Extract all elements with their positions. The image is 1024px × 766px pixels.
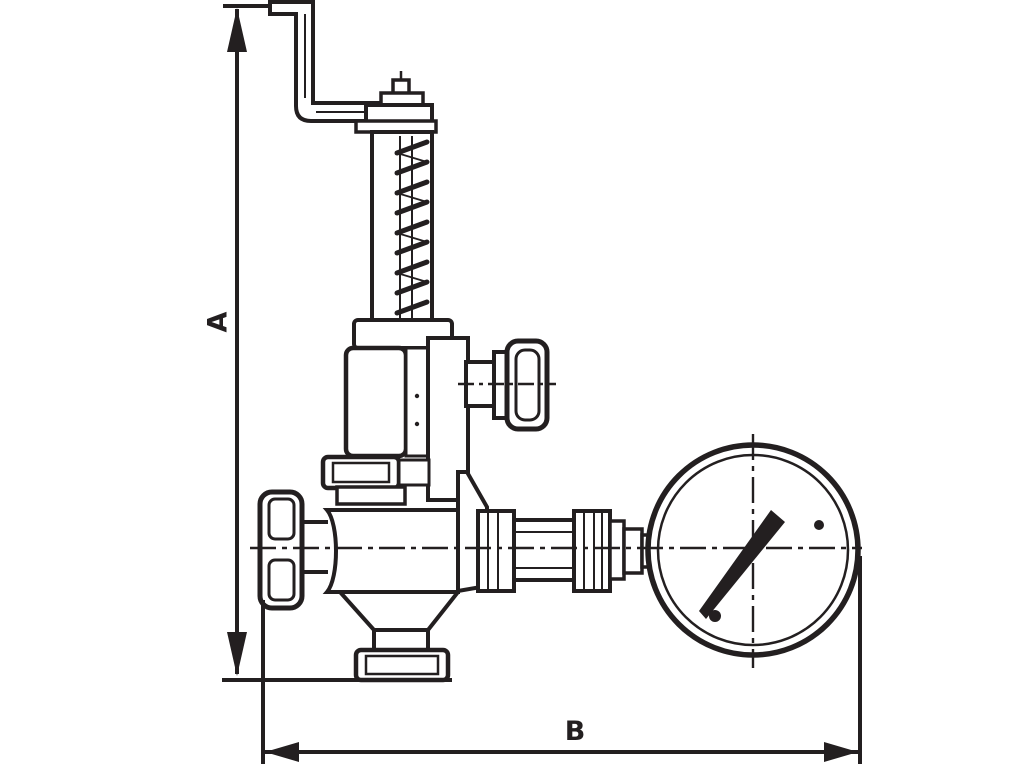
arrowhead-right — [824, 742, 858, 762]
dimension-label-b: B — [565, 716, 586, 747]
outlet-funnel — [340, 592, 458, 630]
valve-technical-drawing: A B — [0, 0, 1024, 766]
diagram-canvas: A B — [0, 0, 1024, 766]
spring-column — [354, 132, 452, 348]
fitting-step-1 — [610, 521, 624, 579]
body-neck — [337, 487, 405, 504]
pipe-section — [514, 520, 574, 580]
fitting-step-2 — [624, 529, 642, 573]
arrowhead-up — [227, 8, 247, 52]
gauge-dot-right — [814, 520, 824, 530]
valve-body — [327, 510, 458, 592]
pipe-fittings — [478, 511, 660, 591]
union-flange-extension — [399, 460, 429, 485]
dimension-label-a: A — [203, 311, 234, 332]
fitting-1 — [478, 511, 514, 591]
bonnet-strip — [406, 348, 428, 456]
bonnet-tick-2 — [415, 422, 419, 426]
fitting-2 — [574, 511, 610, 591]
union-flange — [323, 457, 399, 488]
handwheel-outer — [260, 492, 302, 608]
left-handwheel — [260, 492, 302, 608]
bonnet — [346, 348, 406, 456]
gauge-dot-left — [709, 610, 721, 622]
arrowhead-left — [265, 742, 299, 762]
valve-assembly — [260, 2, 858, 680]
bonnet-tick-1 — [415, 394, 419, 398]
arrowhead-down — [227, 632, 247, 676]
outlet-flange — [356, 650, 448, 680]
